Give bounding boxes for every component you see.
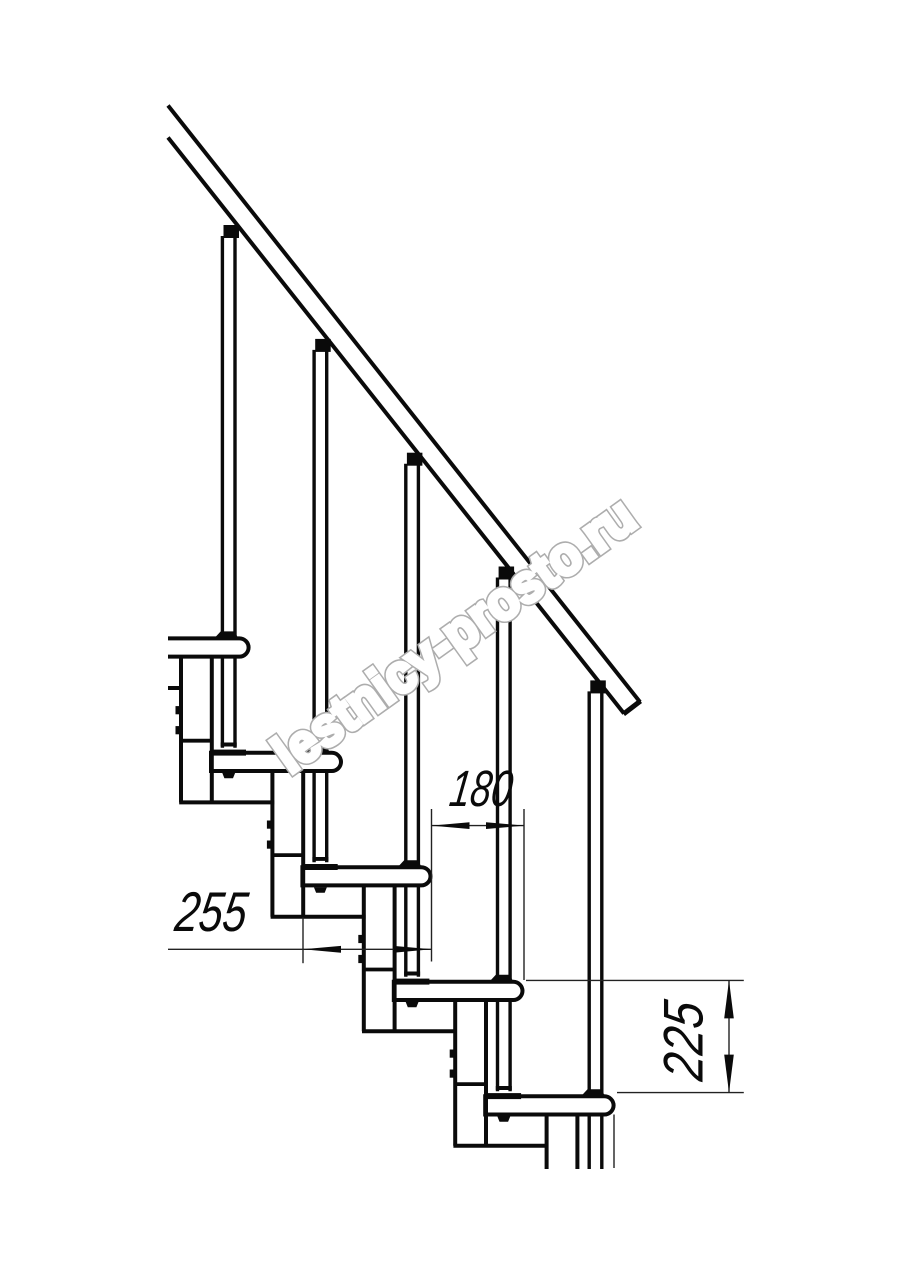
svg-text:180: 180 <box>446 760 516 817</box>
svg-text:255: 255 <box>171 880 252 943</box>
svg-text:225: 225 <box>652 996 715 1084</box>
